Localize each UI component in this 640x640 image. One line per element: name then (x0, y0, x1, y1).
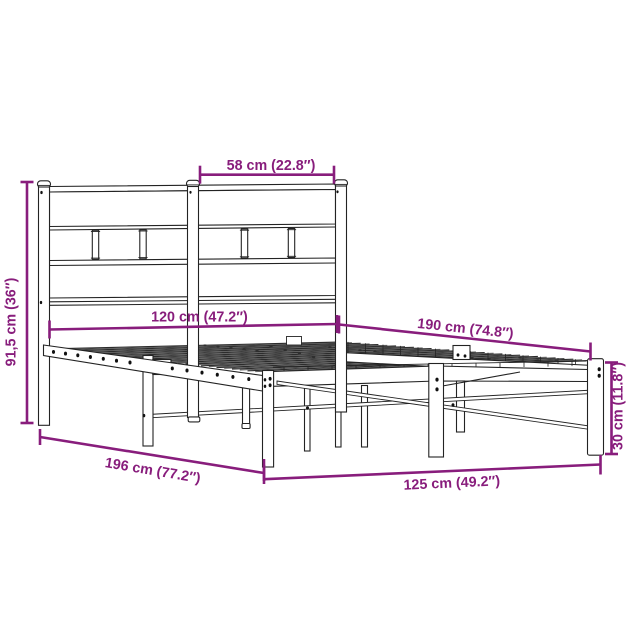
svg-text:30 cm (11.8″): 30 cm (11.8″) (611, 362, 627, 450)
svg-text:91,5 cm (36″): 91,5 cm (36″) (4, 277, 20, 366)
svg-text:58 cm (22.8″): 58 cm (22.8″) (227, 158, 316, 174)
svg-text:120 cm (47.2″): 120 cm (47.2″) (151, 310, 248, 326)
